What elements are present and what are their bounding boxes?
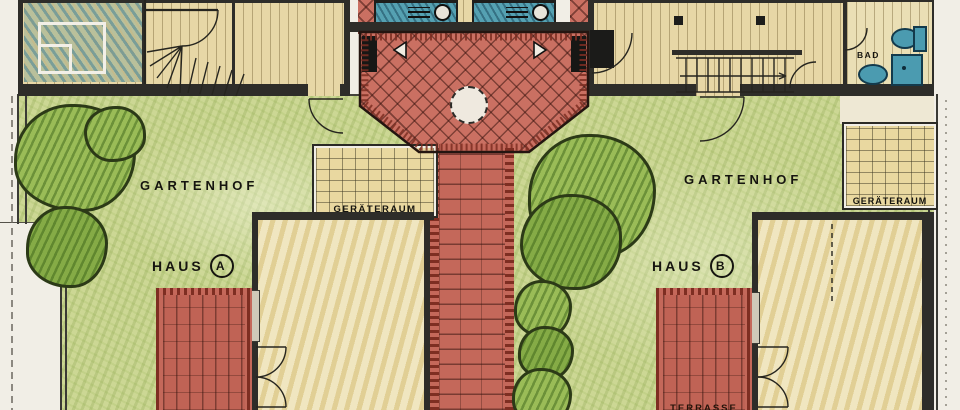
haus-b-id-badge: B: [710, 254, 734, 278]
haus-b-terrace-doors: [758, 347, 788, 407]
site-plan: BAD GERÄTERAUM GERÄTERAUM TERRASSE: [0, 0, 960, 410]
gartenhof-left-label: GARTENHOF: [140, 178, 258, 193]
haus-a-terrace-doors: [256, 347, 286, 407]
linework-overlay: [0, 0, 960, 410]
plaza-marker-left: [394, 42, 406, 58]
haus-b-label: HAUS B: [652, 254, 734, 278]
garden-gate-right: [700, 97, 744, 141]
door-swing: [790, 62, 816, 88]
garden-gate-left: [309, 99, 343, 133]
haus-a-id-badge: A: [210, 254, 234, 278]
haus-b-word: HAUS: [652, 258, 704, 274]
door-swing: [845, 28, 867, 50]
plaza-tick-edge: [365, 37, 583, 147]
door-swing: [592, 33, 632, 73]
haus-a-word: HAUS: [152, 258, 204, 274]
winder-stair: [145, 0, 244, 96]
gartenhof-right-label: GARTENHOF: [684, 172, 802, 187]
haus-a-label: HAUS A: [152, 254, 234, 278]
plaza-marker-right: [534, 42, 546, 58]
straight-stair: [676, 58, 794, 92]
